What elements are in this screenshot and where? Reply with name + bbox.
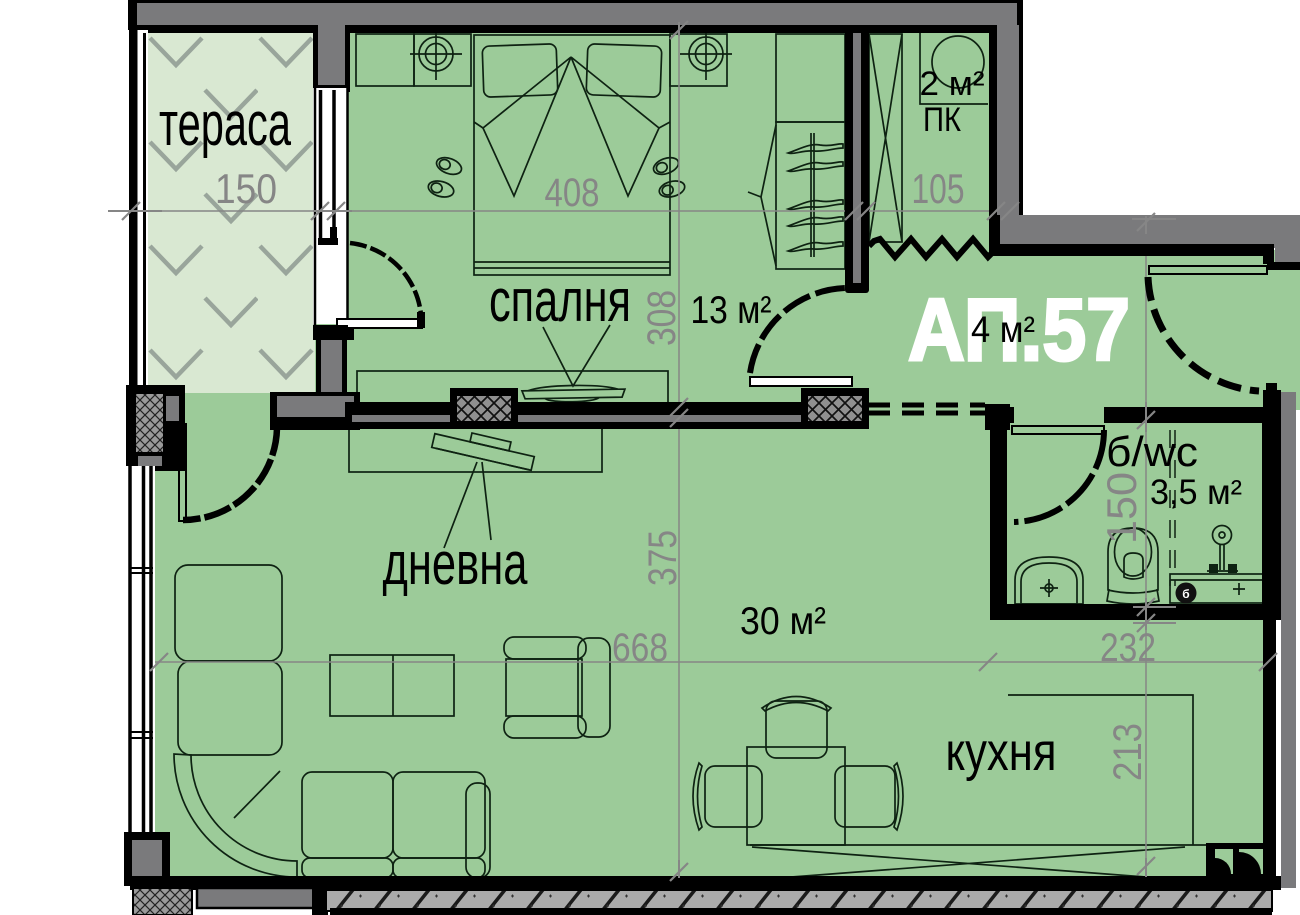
svg-text:б/wc: б/wc <box>1106 428 1198 475</box>
svg-text:кухня: кухня <box>946 722 1057 782</box>
svg-text:213: 213 <box>1106 723 1150 781</box>
svg-text:б: б <box>1182 587 1189 601</box>
svg-text:дневна: дневна <box>383 530 528 597</box>
svg-text:спалня: спалня <box>489 267 631 334</box>
svg-text:30 м²: 30 м² <box>740 600 826 643</box>
svg-text:105: 105 <box>912 165 965 212</box>
svg-text:232: 232 <box>1100 626 1156 670</box>
svg-text:308: 308 <box>640 290 684 346</box>
svg-text:668: 668 <box>612 626 668 670</box>
svg-text:150: 150 <box>215 165 277 212</box>
svg-text:408: 408 <box>545 171 600 215</box>
svg-text:4 м²: 4 м² <box>971 309 1035 350</box>
svg-text:2 м²: 2 м² <box>920 65 985 103</box>
svg-text:тераса: тераса <box>159 90 291 159</box>
svg-text:ПК: ПК <box>923 101 961 139</box>
svg-text:150: 150 <box>1098 472 1145 544</box>
svg-text:375: 375 <box>641 530 685 586</box>
svg-text:13 м²: 13 м² <box>691 289 772 332</box>
svg-text:3,5 м²: 3,5 м² <box>1150 473 1242 512</box>
